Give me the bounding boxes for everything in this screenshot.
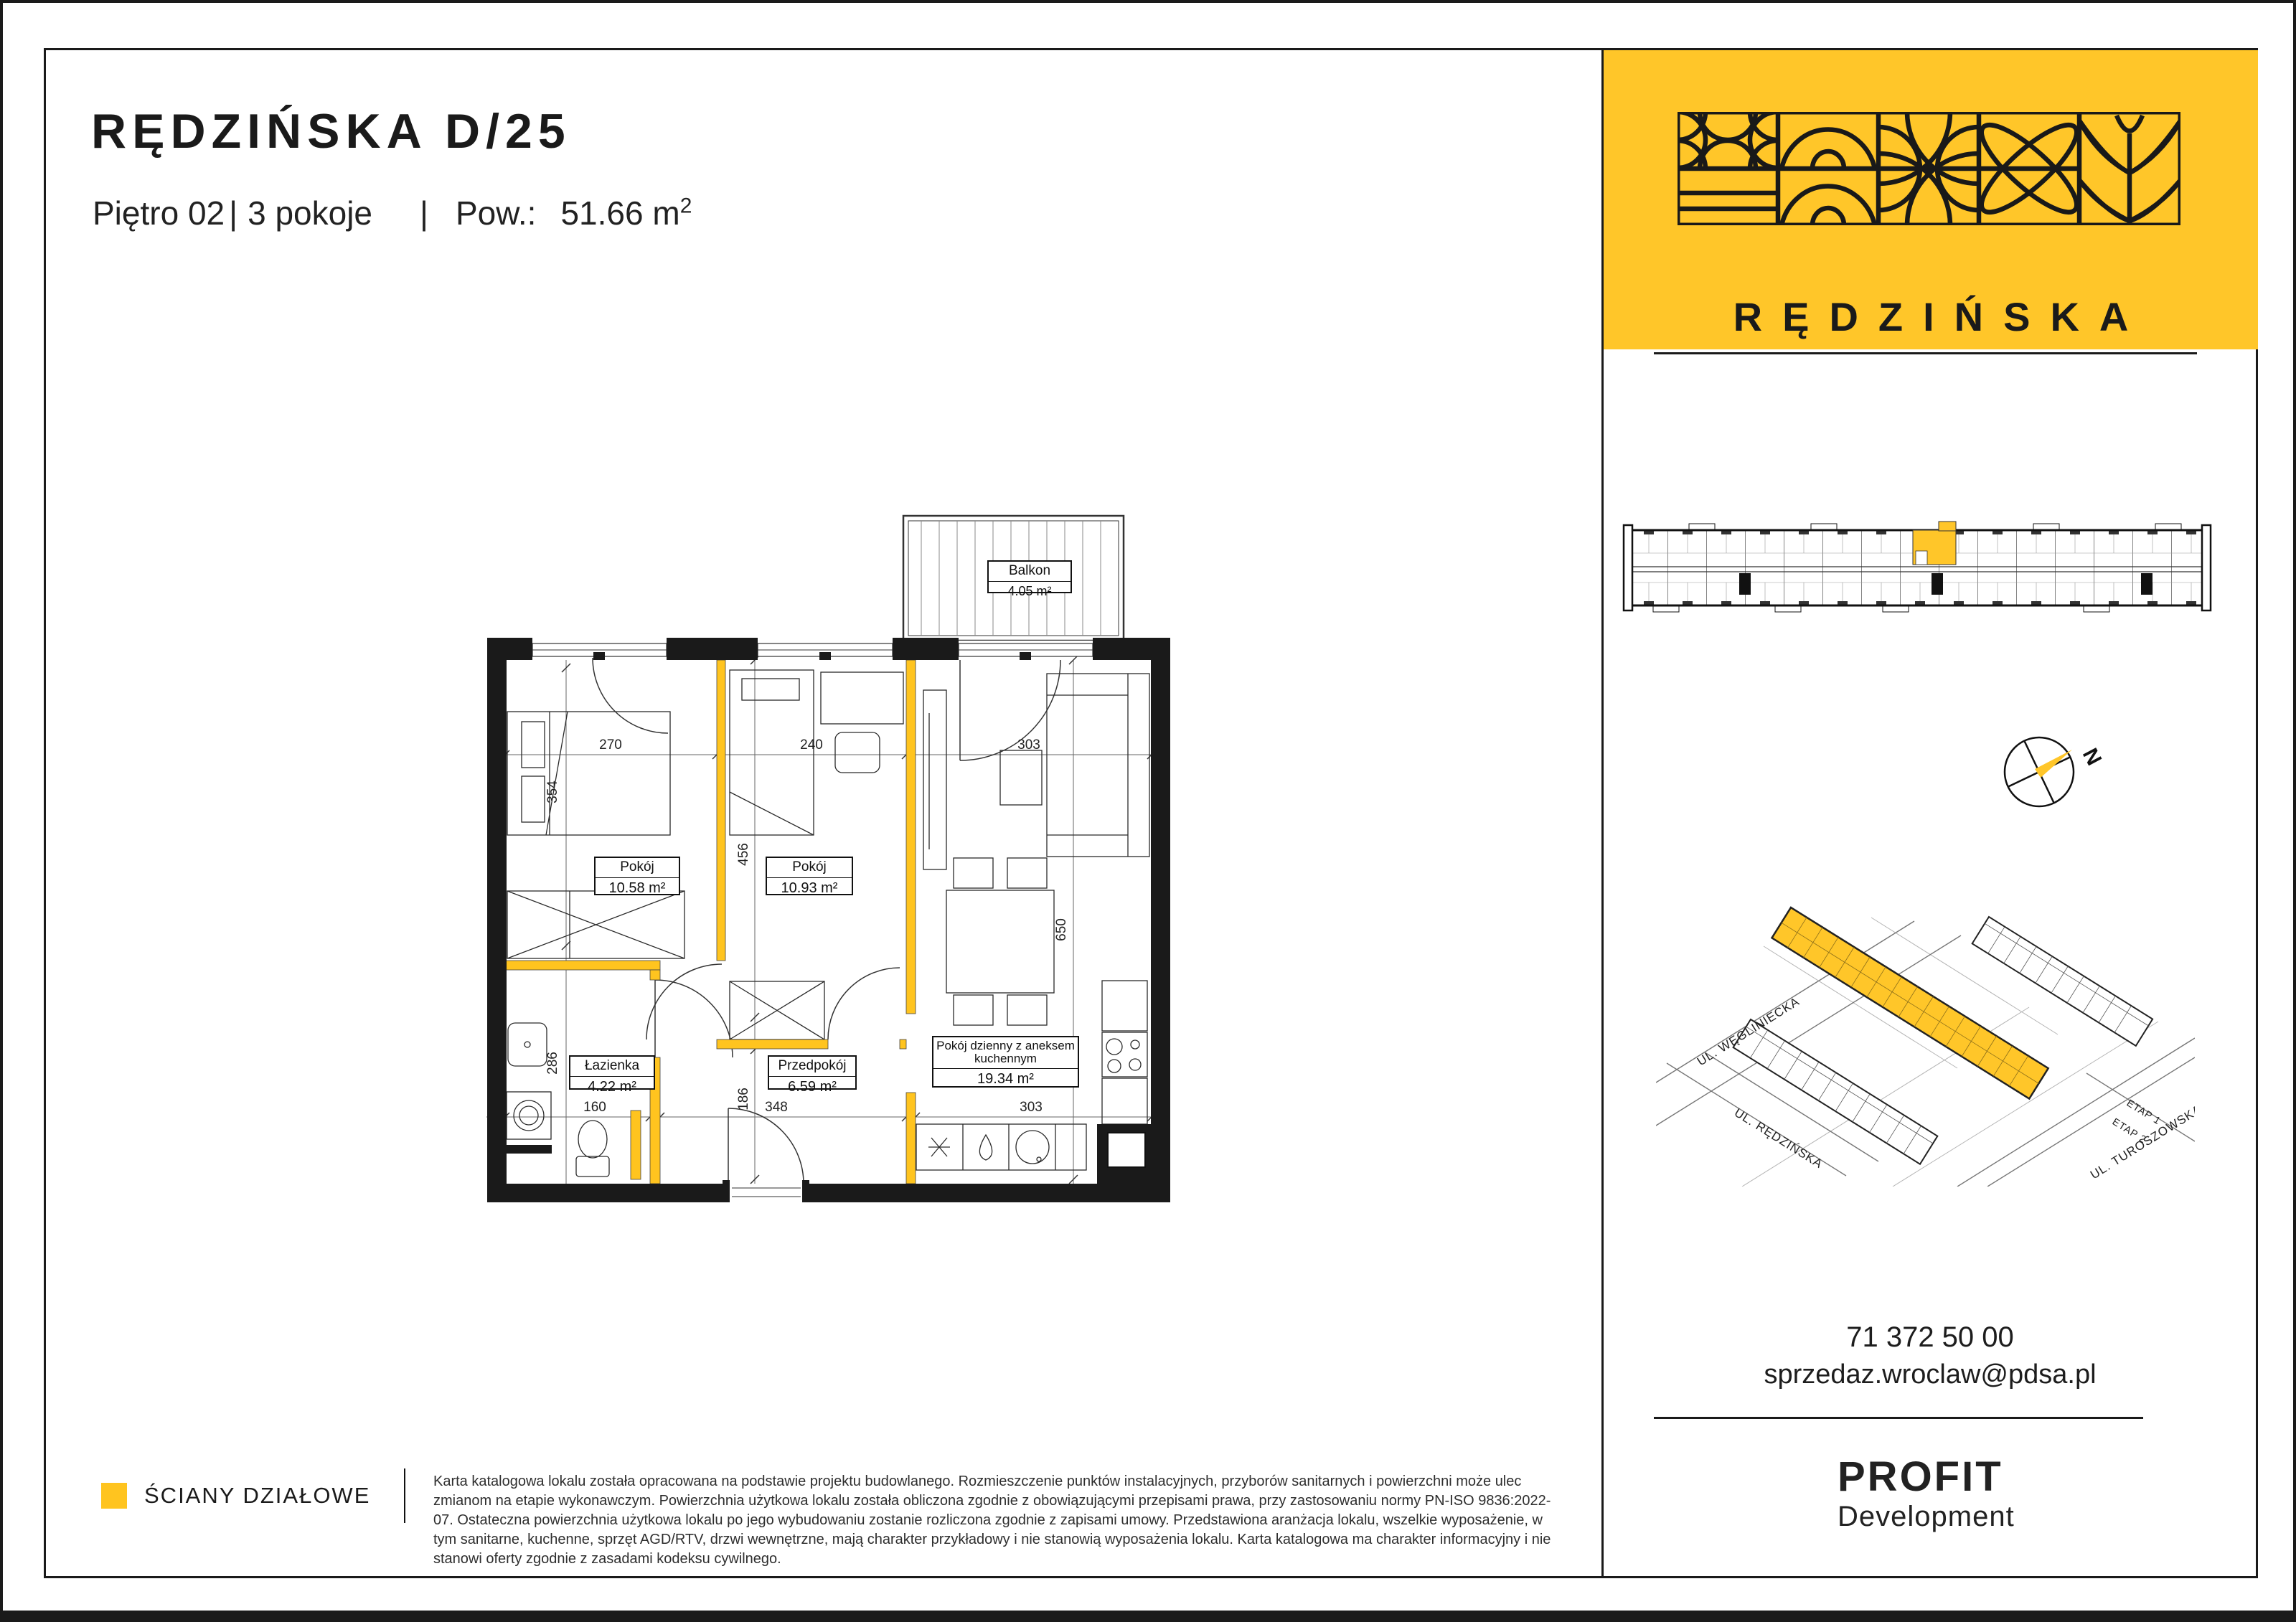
dim-270: 270	[599, 737, 622, 753]
shaft	[1108, 1133, 1145, 1167]
developer-logo: PROFIT Development	[1838, 1456, 2015, 1533]
building-floor-strip	[1621, 512, 2216, 616]
dim-456: 456	[736, 843, 751, 866]
street-label-redzinska: UL. RĘDZIŃSKA	[1732, 1105, 1825, 1171]
legend-color-swatch	[101, 1483, 127, 1509]
building-etap-left	[1733, 1019, 1938, 1164]
brand-underline	[1654, 352, 2197, 354]
legend-partition-walls: ŚCIANY DZIAŁOWE	[101, 1483, 370, 1509]
compass-north-label: N	[2078, 745, 2106, 770]
room-label-pokoj-dzienny: Pokój dzienny z aneksem kuchennym 19.34 …	[932, 1036, 1079, 1088]
catalog-card-page: RĘDZIŃSKA D/25 Piętro 02 | 3 pokoje | Po…	[0, 0, 2296, 1622]
sales-phone: 71 372 50 00	[1604, 1321, 2256, 1354]
dim-240: 240	[800, 737, 823, 753]
room-label-pokoj-2: Pokój 10.93 m²	[766, 857, 853, 895]
contact-block: 71 372 50 00 sprzedaz.wroclaw@pdsa.pl	[1604, 1321, 2256, 1390]
page-title: RĘDZIŃSKA D/25	[91, 103, 571, 159]
separator: |	[420, 194, 428, 232]
room-label-pokoj-1: Pokój 10.58 m²	[594, 857, 680, 895]
dim-186: 186	[736, 1088, 751, 1111]
area-value: 51.66 m2	[560, 194, 692, 232]
site-map: UL. WĘGLINIECKA UL. RĘDZIŃSKA UL. TUROSZ…	[1656, 878, 2195, 1187]
dim-303-bottom: 303	[1020, 1100, 1043, 1115]
area-superscript: 2	[680, 194, 692, 218]
room-label-balkon: Balkon 4.05 m²	[987, 560, 1072, 593]
dim-286: 286	[545, 1052, 560, 1075]
room-label-przedpokoj: Przedpokój 6.59 m²	[768, 1055, 857, 1090]
contact-divider	[1654, 1417, 2143, 1419]
brand-name: RĘDZIŃSKA	[1604, 293, 2258, 340]
etap2-label: ETAP 2	[2110, 1116, 2148, 1146]
area-label: Pow.:	[456, 194, 537, 232]
dim-354: 354	[545, 781, 560, 803]
floor-label: Piętro 02	[93, 194, 225, 232]
apartment-summary: Piętro 02 | 3 pokoje | Pow.: 51.66 m2	[93, 194, 692, 232]
dim-303-top: 303	[1017, 737, 1040, 753]
dim-650: 650	[1054, 918, 1069, 941]
sales-email: sprzedaz.wroclaw@pdsa.pl	[1604, 1359, 2256, 1390]
compass-icon: N	[1990, 720, 2127, 828]
highlighted-unit	[1913, 522, 1956, 565]
developer-subtitle: Development	[1838, 1501, 2015, 1533]
building-etap-right	[1972, 917, 2152, 1046]
legend-label: ŚCIANY DZIAŁOWE	[144, 1483, 370, 1509]
disclaimer-text: Karta katalogowa lokalu została opracowa…	[433, 1472, 1556, 1569]
legend-divider	[404, 1468, 405, 1523]
separator: |	[229, 194, 237, 232]
brand-logo-pattern	[1678, 112, 2180, 225]
dim-160: 160	[583, 1100, 606, 1115]
etap1-label: ETAP 1	[2125, 1097, 2163, 1127]
dim-348: 348	[765, 1100, 788, 1115]
developer-name: PROFIT	[1838, 1456, 2015, 1498]
room-label-lazienka: Łazienka 4.22 m²	[569, 1055, 655, 1090]
rooms-count: 3 pokoje	[248, 194, 372, 232]
